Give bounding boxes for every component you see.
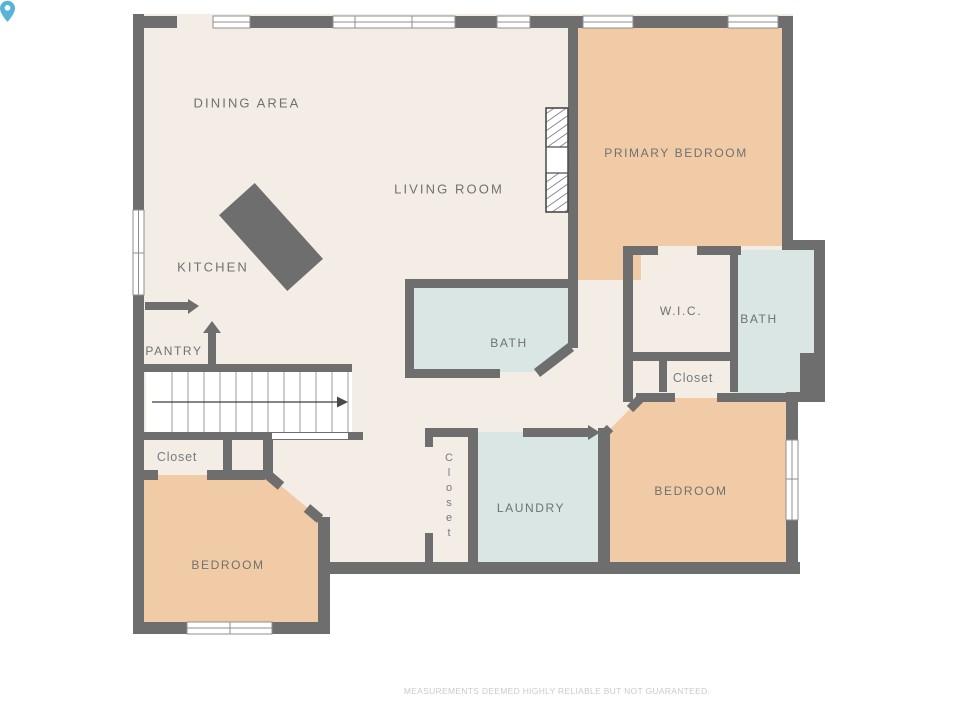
stairs bbox=[146, 370, 352, 433]
bedroom-right-area bbox=[606, 398, 790, 566]
room-label-closet-hall: Closet bbox=[443, 452, 455, 542]
room-label-closet-left: Closet bbox=[157, 450, 197, 464]
floor-plan-drawing bbox=[0, 0, 960, 720]
map-pin-icon bbox=[0, 0, 15, 24]
room-label-laundry: LAUNDRY bbox=[497, 501, 565, 515]
room-label-bedroom-left: BEDROOM bbox=[191, 558, 264, 572]
laundry-area bbox=[473, 432, 603, 566]
room-label-wic: W.I.C. bbox=[660, 304, 702, 318]
disclaimer-text: MEASUREMENTS DEEMED HIGHLY RELIABLE BUT … bbox=[404, 686, 710, 696]
stairs-landing-slot bbox=[272, 433, 348, 439]
room-label-bedroom-right: BEDROOM bbox=[654, 484, 727, 498]
floor-plan-canvas: DINING AREA LIVING ROOM PRIMARY BEDROOM … bbox=[0, 0, 960, 720]
room-label-living-room: LIVING ROOM bbox=[394, 182, 504, 197]
fireplace bbox=[546, 108, 568, 212]
room-label-primary-bedroom: PRIMARY BEDROOM bbox=[604, 146, 748, 160]
room-label-pantry: PANTRY bbox=[145, 344, 202, 358]
room-label-dining-area: DINING AREA bbox=[194, 96, 301, 111]
bedroom-left-area bbox=[140, 475, 322, 626]
room-label-bath-ensuite: BATH bbox=[740, 312, 778, 326]
room-label-closet-upper: Closet bbox=[673, 371, 713, 385]
room-label-bath-main: BATH bbox=[490, 336, 528, 350]
room-label-kitchen: KITCHEN bbox=[177, 260, 249, 275]
